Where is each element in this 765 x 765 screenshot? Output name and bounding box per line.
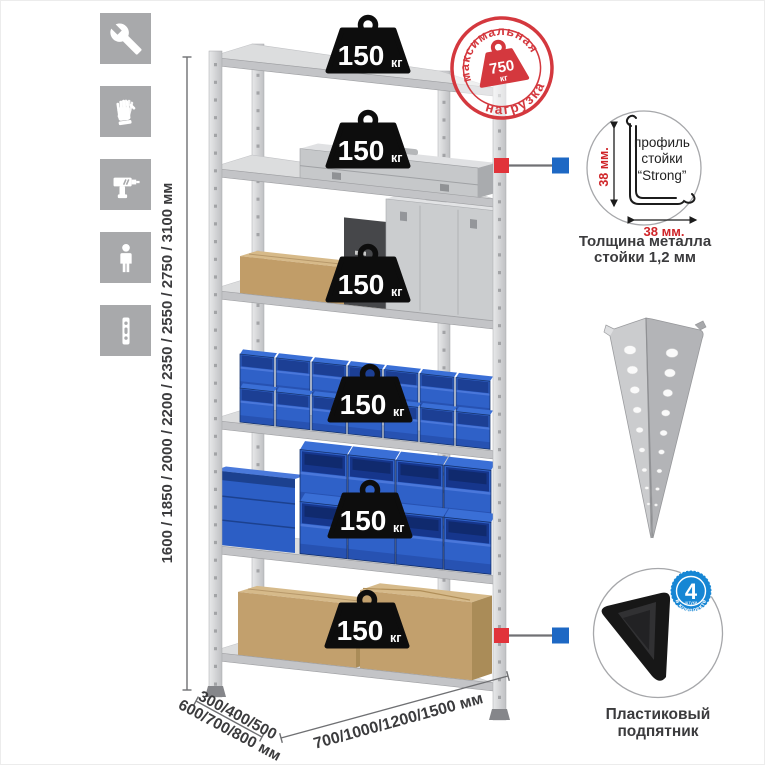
profile-dim-vertical-label: 38 мм. (597, 147, 611, 186)
product-diagram: 1600 / 1850 / 2000 / 2200 / 2350 / 2550 … (0, 0, 765, 765)
blue-tote-box (215, 465, 306, 554)
max-load-stamp: максимальная нагрузка 750 кг (436, 2, 568, 134)
shelf-weight-1: 150 кг (328, 18, 408, 72)
red-marker-square (494, 628, 509, 643)
profile-text-line3: “Strong” (638, 168, 687, 183)
width-dimension-label: 700/1000/1200/1500 мм (312, 690, 485, 753)
blue-marker-square (552, 158, 569, 174)
blue-marker-square (552, 628, 569, 644)
foot-caption: Пластиковый подпятник (574, 706, 742, 740)
profile-caption-line2: стойки 1,2 мм (570, 250, 720, 266)
shelf-weight-2: 150 кг (328, 113, 408, 167)
red-marker-square (494, 158, 509, 173)
callout-marker-top (494, 158, 569, 174)
angle-post-picture (604, 318, 706, 538)
weight-value: 150 (338, 135, 385, 166)
weight-unit: кг (391, 56, 402, 70)
weight-unit: кг (393, 405, 404, 419)
height-dimension-label: 1600 / 1850 / 2000 / 2200 / 2350 / 2550 … (159, 183, 176, 564)
depth-dimension-label: 300/400/500 600/700/800 мм (175, 681, 291, 764)
profile-text-line2: стойки (641, 151, 682, 166)
foot-caption-line2: подпятник (574, 723, 742, 740)
callout-marker-bottom (494, 628, 569, 644)
weight-unit: кг (390, 631, 401, 645)
height-dimension (183, 57, 192, 690)
profile-callout: 38 мм. 38 мм. профиль стойки “Strong” (587, 111, 701, 239)
weight-value: 150 (340, 505, 387, 536)
foot-callout: 4 штуки в комплекте (594, 569, 723, 698)
profile-caption-line1: Толщина металла (570, 234, 720, 250)
profile-caption: Толщина металла стойки 1,2 мм (570, 234, 720, 265)
weight-unit: кг (391, 285, 402, 299)
weight-value: 150 (340, 389, 387, 420)
profile-text-line1: профиль (634, 135, 690, 150)
weight-unit: кг (393, 521, 404, 535)
weight-value: 150 (338, 269, 385, 300)
badge-sub-label: штуки (685, 600, 698, 605)
foot-caption-line1: Пластиковый (574, 706, 742, 723)
weight-value: 150 (337, 615, 384, 646)
weight-unit: кг (391, 151, 402, 165)
weight-value: 150 (338, 40, 385, 71)
